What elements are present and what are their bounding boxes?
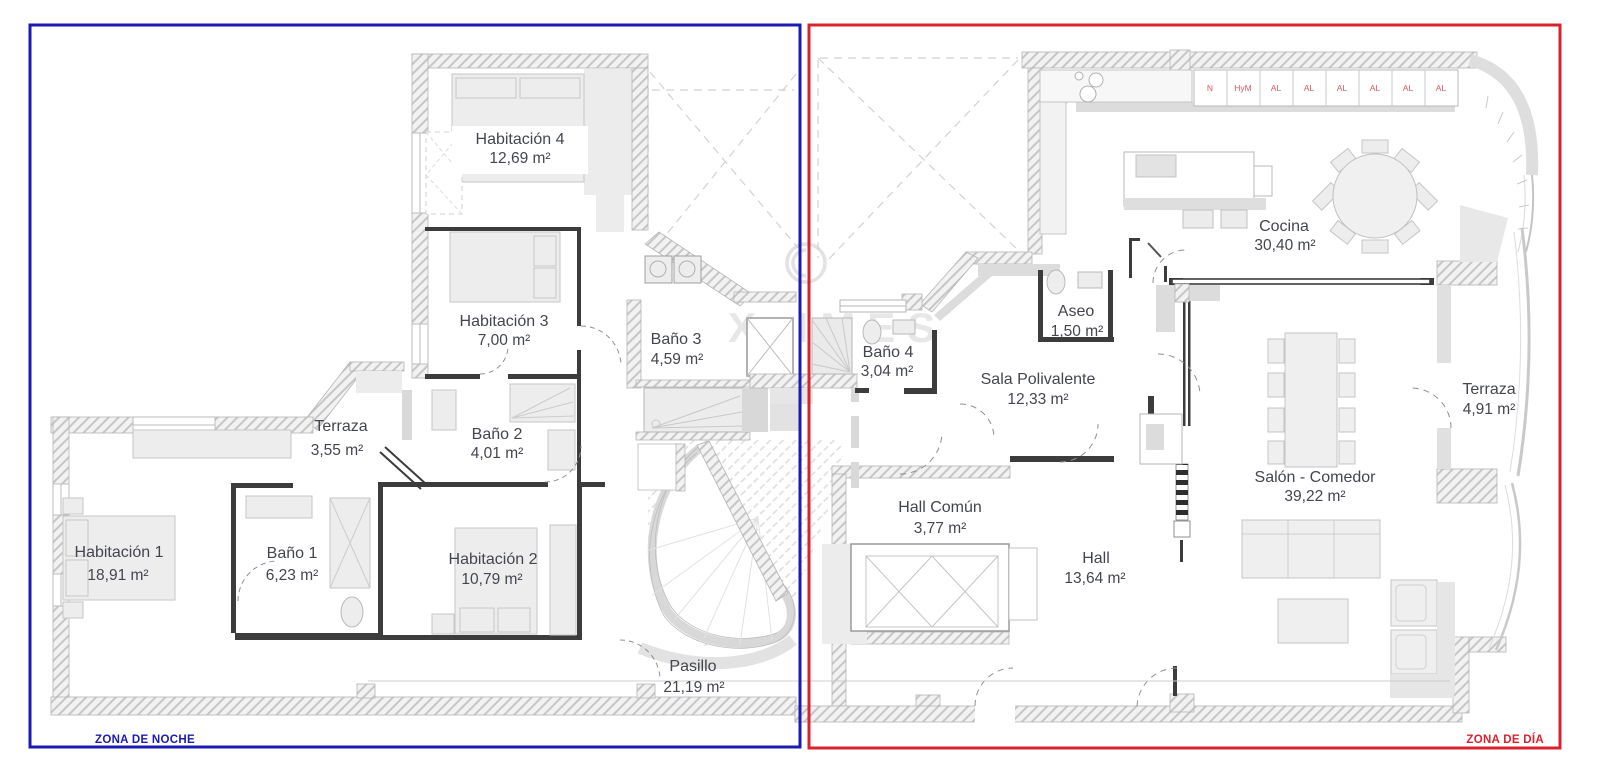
svg-text:3,77 m²: 3,77 m²	[914, 520, 967, 537]
svg-text:4,59 m²: 4,59 m²	[651, 351, 704, 368]
svg-text:7,00 m²: 7,00 m²	[478, 332, 531, 349]
svg-text:39,22 m²: 39,22 m²	[1284, 488, 1345, 505]
svg-text:AL: AL	[1370, 83, 1381, 93]
svg-text:12,69 m²: 12,69 m²	[489, 150, 550, 167]
svg-text:Baño 3: Baño 3	[651, 331, 702, 348]
svg-text:Aseo: Aseo	[1058, 303, 1095, 320]
svg-text:ZONA DE NOCHE: ZONA DE NOCHE	[95, 734, 195, 746]
svg-text:Baño 4: Baño 4	[863, 344, 914, 361]
svg-text:ZONA DE DÍA: ZONA DE DÍA	[1466, 733, 1544, 746]
svg-text:4,01 m²: 4,01 m²	[471, 445, 524, 462]
svg-text:30,40 m²: 30,40 m²	[1254, 237, 1315, 254]
svg-text:Terraza: Terraza	[314, 418, 367, 435]
svg-text:21,19 m²: 21,19 m²	[663, 679, 724, 696]
svg-text:AL: AL	[1304, 83, 1315, 93]
svg-text:Habitación 3: Habitación 3	[460, 313, 549, 330]
svg-text:18,91 m²: 18,91 m²	[87, 567, 148, 584]
svg-text:4,91 m²: 4,91 m²	[1463, 401, 1516, 418]
svg-text:Habitación 2: Habitación 2	[449, 551, 538, 568]
svg-text:HyM: HyM	[1234, 83, 1251, 93]
svg-text:Habitación 1: Habitación 1	[75, 544, 164, 561]
svg-text:Pasillo: Pasillo	[669, 658, 716, 675]
svg-text:Baño 2: Baño 2	[472, 426, 523, 443]
svg-text:Hall Común: Hall Común	[898, 499, 982, 516]
svg-text:Terraza: Terraza	[1462, 381, 1515, 398]
svg-text:N: N	[1207, 83, 1213, 93]
svg-text:Cocina: Cocina	[1259, 218, 1309, 235]
svg-text:6,23 m²: 6,23 m²	[266, 567, 319, 584]
svg-text:Habitación 4: Habitación 4	[476, 131, 565, 148]
svg-text:Baño 1: Baño 1	[267, 545, 318, 562]
svg-text:12,33 m²: 12,33 m²	[1007, 391, 1068, 408]
svg-text:3,04 m²: 3,04 m²	[861, 363, 914, 380]
svg-text:13,64 m²: 13,64 m²	[1064, 570, 1125, 587]
svg-text:AL: AL	[1436, 83, 1447, 93]
svg-text:3,55 m²: 3,55 m²	[311, 442, 364, 459]
svg-text:Hall: Hall	[1082, 550, 1110, 567]
svg-text:10,79 m²: 10,79 m²	[461, 571, 522, 588]
svg-text:Salón - Comedor: Salón - Comedor	[1255, 469, 1377, 486]
svg-text:AL: AL	[1271, 83, 1282, 93]
svg-text:1,50 m²: 1,50 m²	[1051, 323, 1104, 340]
svg-text:Sala Polivalente: Sala Polivalente	[981, 371, 1096, 388]
svg-text:AL: AL	[1403, 83, 1414, 93]
svg-text:AL: AL	[1337, 83, 1348, 93]
